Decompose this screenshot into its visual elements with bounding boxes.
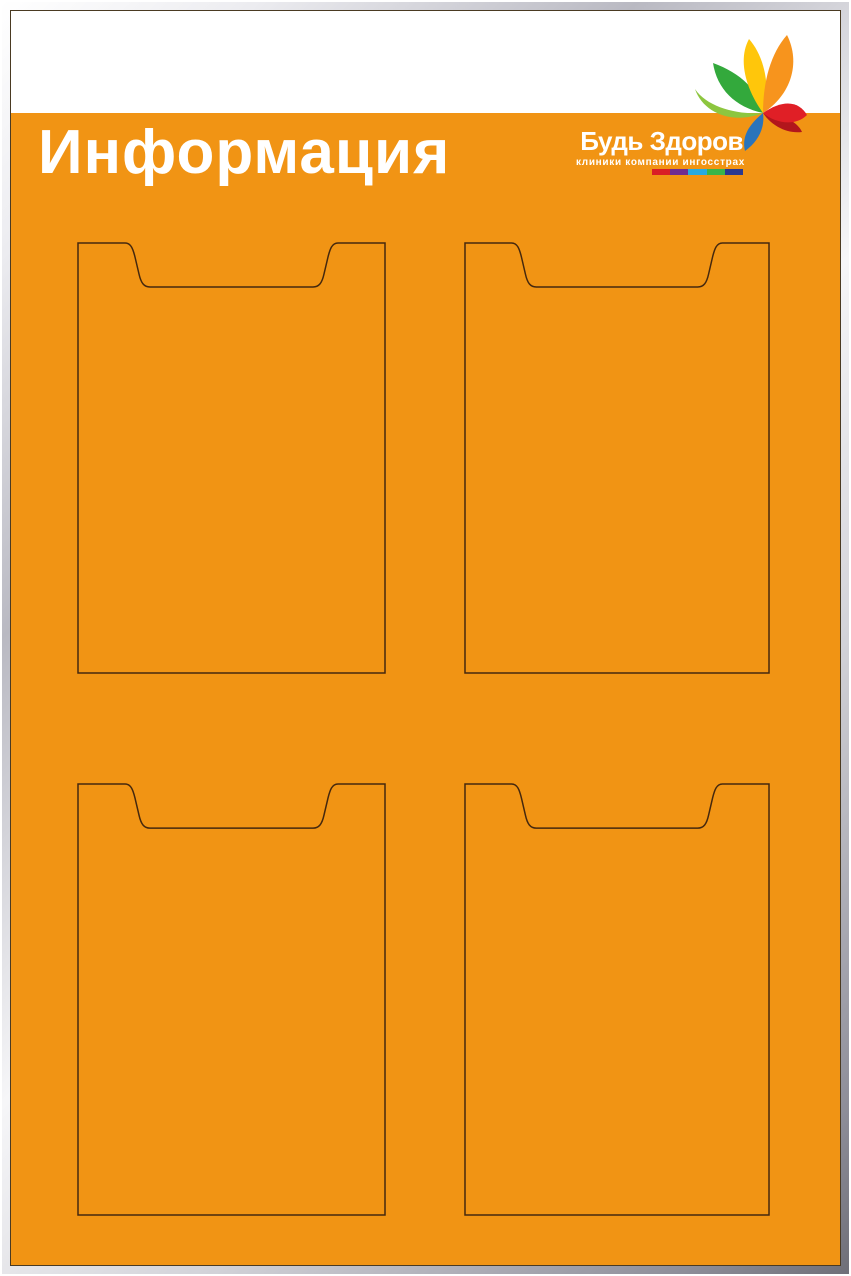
stripe-segment bbox=[652, 169, 670, 175]
pocket-outline bbox=[78, 784, 385, 1215]
pocket-outline bbox=[465, 243, 769, 673]
logo-brand-name: Будь Здоров bbox=[580, 128, 743, 154]
board-surface: Информация Будь Здоров клиники компании … bbox=[10, 10, 841, 1266]
orange-petal bbox=[763, 35, 793, 113]
logo-tagline: клиники компании ингосстрах bbox=[576, 157, 745, 168]
document-pocket bbox=[77, 783, 386, 1216]
blue-petal bbox=[744, 113, 763, 151]
document-pocket bbox=[77, 242, 386, 674]
stripe-segment bbox=[725, 169, 743, 175]
stripe-segment bbox=[688, 169, 706, 175]
logo-color-stripe bbox=[652, 169, 743, 175]
pocket-outline bbox=[78, 243, 385, 673]
document-pocket bbox=[464, 242, 770, 674]
page-title: Информация bbox=[38, 120, 450, 186]
stripe-segment bbox=[670, 169, 688, 175]
document-pocket bbox=[464, 783, 770, 1216]
information-stand: Информация Будь Здоров клиники компании … bbox=[0, 0, 851, 1276]
pocket-outline bbox=[465, 784, 769, 1215]
stripe-segment bbox=[707, 169, 725, 175]
